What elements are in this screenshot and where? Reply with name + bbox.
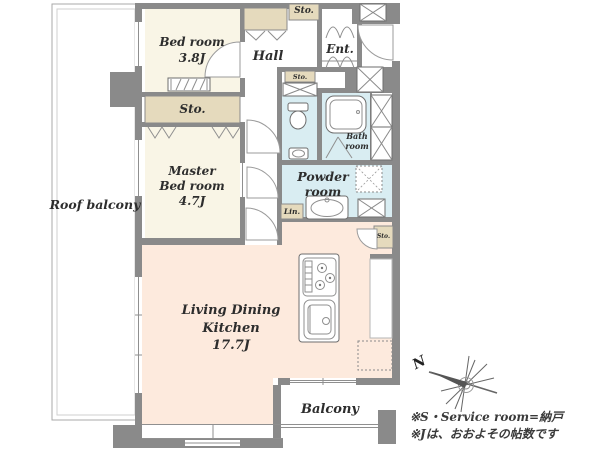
entry-door <box>358 25 393 60</box>
pipe-space-box <box>283 83 317 96</box>
powder-room-label: Powder room <box>287 170 359 199</box>
storage-hall-label: Sto. <box>285 73 315 81</box>
storage-master-label: Sto. <box>145 102 240 116</box>
washing-machine-space <box>356 166 382 192</box>
floor-plan-drawing <box>0 0 600 450</box>
balcony-railing <box>281 425 378 428</box>
footnote-service-room: ※S・Service room=納戸 <box>410 409 563 426</box>
window-master <box>135 140 142 196</box>
bathtub <box>326 96 366 133</box>
compass-icon <box>429 356 497 412</box>
ldk-label: Living Dining Kitchen 17.7J <box>171 302 291 355</box>
ldk-door <box>246 208 278 240</box>
toilet-door <box>247 120 280 153</box>
bathroom-label: Bath room <box>339 132 375 151</box>
kitchen-counter <box>370 254 393 338</box>
pipe-space-box <box>357 67 383 92</box>
footnote-tatami: ※Jは、おおよその帖数です <box>410 426 563 443</box>
footnotes: ※S・Service room=納戸 ※Jは、おおよその帖数です <box>410 409 563 443</box>
window-ldk-west <box>135 277 142 393</box>
roof-balcony-area <box>52 4 140 420</box>
bedroom-label: Bed room 3.8J <box>150 34 234 66</box>
window-bedroom <box>135 22 142 66</box>
window-balcony-slider <box>290 378 356 385</box>
kitchen-island <box>299 254 339 342</box>
storage-entrance-label: Sto. <box>289 6 319 16</box>
balcony-label: Balcony <box>289 402 371 417</box>
pipe-space-box <box>358 199 385 217</box>
powder-sink <box>306 196 348 219</box>
pipe-space-box <box>360 4 386 21</box>
master-bedroom-label: Master Bed room 4.7J <box>147 164 237 209</box>
roof-balcony-label: Roof balcony <box>48 197 142 212</box>
powder-room-door <box>247 167 278 198</box>
entrance-label: Ent. <box>320 42 360 56</box>
hall-label: Hall <box>240 49 296 64</box>
pipe-space-box <box>371 95 392 127</box>
floor-plan: Roof balcony Bed room 3.8J Hall Ent. Sto… <box>0 0 600 450</box>
bedroom-cabinet <box>168 78 210 91</box>
hall-closet <box>244 8 287 30</box>
ldk-floor-lower <box>142 378 273 424</box>
linen-label: Lin. <box>281 207 303 216</box>
storage-kitchen-label: Sto. <box>374 233 393 240</box>
